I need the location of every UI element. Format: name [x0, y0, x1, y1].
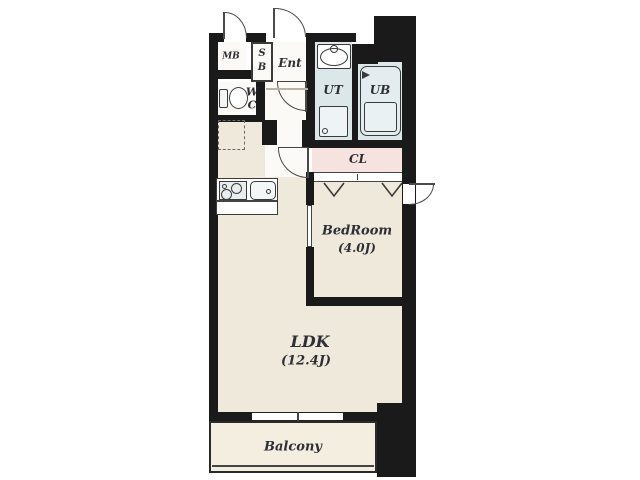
wall-bottom: [209, 412, 252, 421]
closet-label: CL: [349, 153, 367, 165]
wall-top: [209, 33, 224, 42]
entrance-label: Ent: [278, 57, 301, 69]
wall-top: [246, 33, 266, 42]
washbasin-faucet-icon: [330, 45, 338, 53]
sliding-door-panel: [307, 205, 312, 247]
wall-hall-jamb-left: [262, 120, 277, 145]
wall-right: [402, 50, 416, 412]
bathtub-arrow-icon: [362, 71, 370, 79]
closet-track-tick: [357, 174, 358, 180]
sliding-closet-mark-icon: [322, 182, 346, 198]
balcony-label: Balcony: [264, 441, 322, 454]
mb-label: MB: [222, 53, 240, 62]
floor-plan: MB S B Ent W C UT UB CL BedRoom (4.0J) L…: [0, 0, 640, 480]
wall-left: [209, 33, 218, 421]
balcony-inner-line: [212, 465, 374, 467]
stove-burner-icon: [231, 183, 242, 194]
door-swing-arc-icon: [225, 12, 247, 38]
wall-bath-top: [352, 44, 378, 64]
washing-machine-drain-icon: [322, 128, 328, 134]
wall-ut-ub-divider: [352, 62, 358, 140]
sb-label: S: [258, 49, 265, 59]
sliding-closet-mark-icon: [380, 182, 404, 198]
stove-burner-icon: [221, 189, 232, 200]
wall-bedroom-bottom: [306, 297, 416, 306]
entry-step-line: [266, 88, 308, 90]
sink-drain-icon: [266, 189, 271, 194]
ldk-floor: [218, 122, 265, 412]
kitchen-counter-edge: [217, 200, 277, 202]
wc-label: C: [248, 100, 257, 111]
window-center-mullion: [297, 412, 299, 421]
stove-knob-icon: [222, 184, 227, 189]
wall-pillar-bottom-right: [377, 403, 416, 477]
wall-top: [306, 33, 356, 42]
bedroom-label: BedRoom: [322, 225, 392, 238]
ldk-size-label: (12.4J): [281, 355, 331, 368]
bath-label: UB: [370, 84, 391, 96]
wc-label: W: [246, 87, 258, 98]
door-swing-arc-icon: [409, 184, 434, 205]
refrigerator-space-icon: [218, 120, 245, 150]
kitchen-sink-icon: [250, 181, 276, 200]
bedroom-size-label: (4.0J): [338, 242, 376, 254]
wall-hall-jamb-right: [302, 120, 315, 147]
ldk-label: LDK: [290, 334, 329, 350]
toilet-icon: [219, 89, 228, 108]
wall-wet-bottom: [308, 140, 402, 148]
wall-mb-bottom: [209, 70, 253, 79]
wall-bottom: [343, 412, 379, 421]
door-swing-arc-icon: [275, 8, 306, 37]
sb-label: B: [258, 63, 266, 73]
utility-label: UT: [323, 84, 342, 96]
bathtub-basin-icon: [364, 102, 397, 132]
